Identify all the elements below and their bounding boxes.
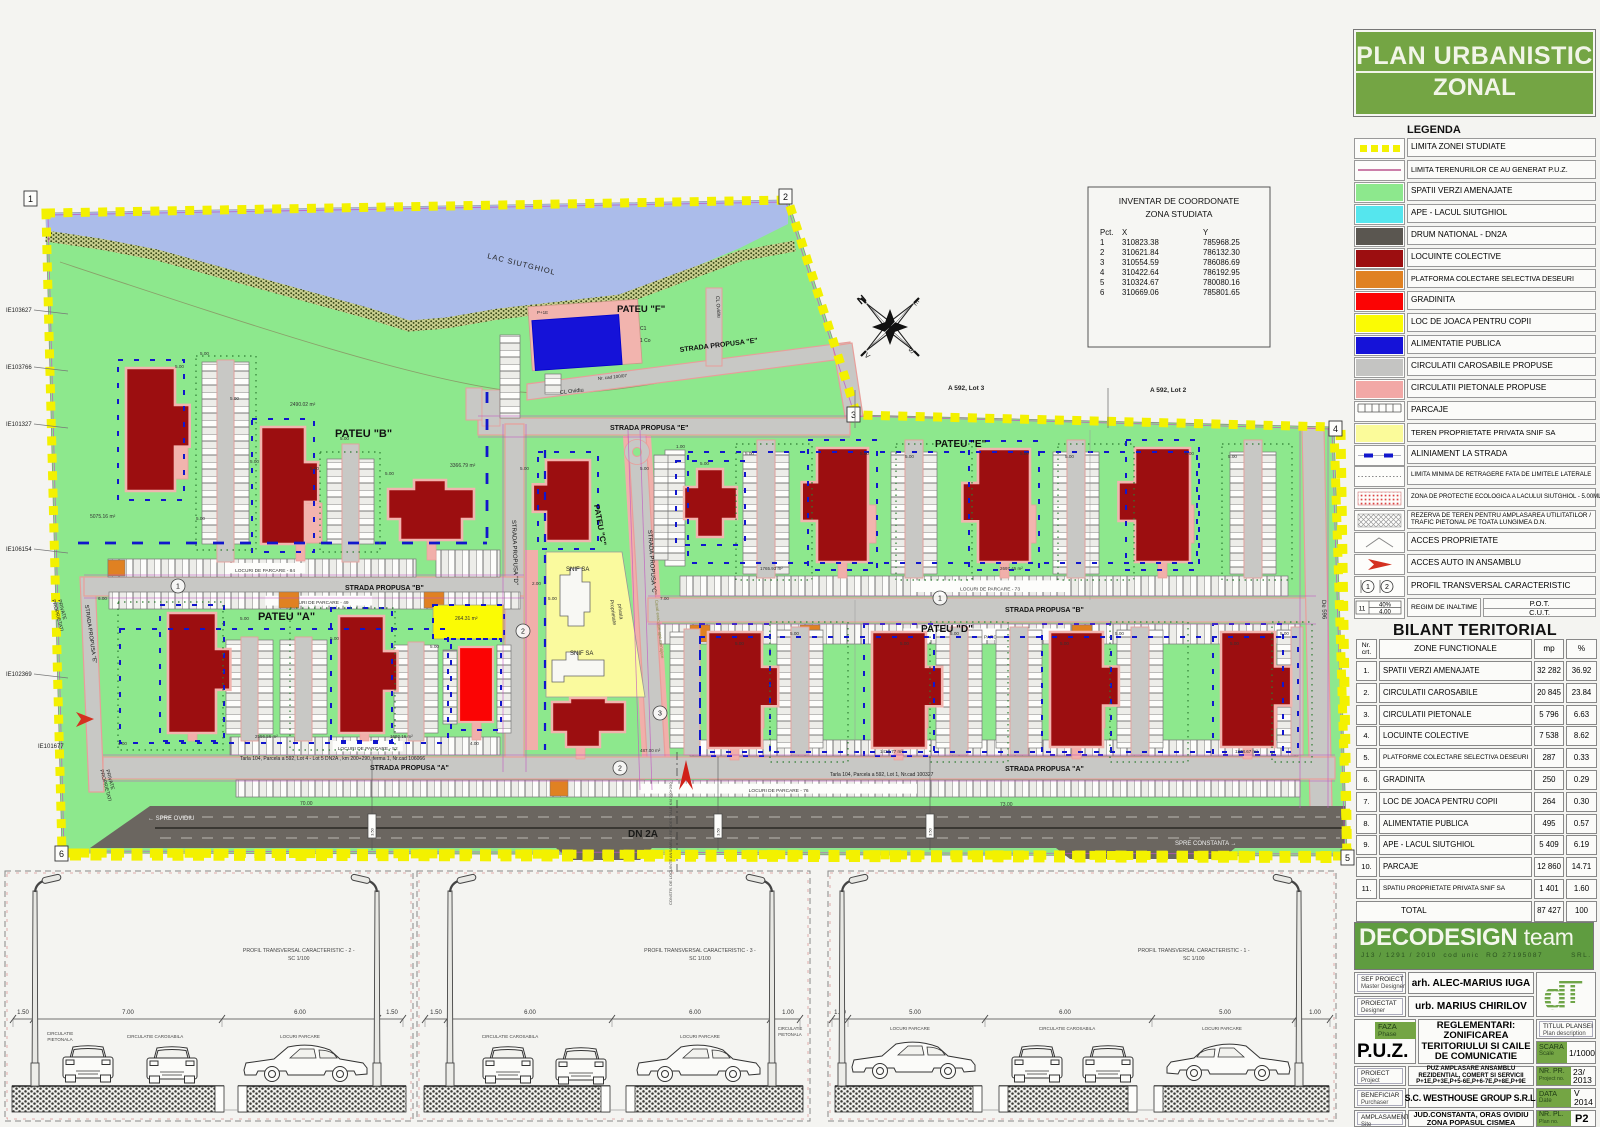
svg-text:5.00: 5.00 xyxy=(1219,1010,1231,1016)
svg-text:5.00: 5.00 xyxy=(240,616,249,621)
svg-text:6.00: 6.00 xyxy=(689,1010,701,1016)
svg-text:STRADA PROPUSA "A": STRADA PROPUSA "A" xyxy=(1005,766,1084,773)
svg-text:IE103766: IE103766 xyxy=(6,365,32,371)
svg-text:5.00: 5.00 xyxy=(1230,641,1239,646)
svg-text:785801.65: 785801.65 xyxy=(1203,288,1241,297)
svg-text:3.50: 3.50 xyxy=(371,828,375,835)
svg-text:← SPRE OVIDIU: ← SPRE OVIDIU xyxy=(148,816,194,822)
svg-text:IE106154: IE106154 xyxy=(6,547,32,553)
svg-text:5.00: 5.00 xyxy=(1065,454,1074,459)
svg-text:310823.38: 310823.38 xyxy=(1122,238,1159,247)
svg-text:STRADA PROPUSA "B": STRADA PROPUSA "B" xyxy=(1005,607,1084,614)
svg-text:5.00: 5.00 xyxy=(905,454,914,459)
svg-text:LOCURI PARCARE: LOCURI PARCARE xyxy=(280,1034,320,1039)
svg-text:IE103627: IE103627 xyxy=(6,308,32,314)
svg-text:5.00: 5.00 xyxy=(196,516,205,521)
svg-text:5.00: 5.00 xyxy=(640,466,649,471)
svg-text:5.00: 5.00 xyxy=(909,1010,921,1016)
svg-text:264.31 m²: 264.31 m² xyxy=(455,616,478,622)
svg-text:Pct.: Pct. xyxy=(1100,228,1113,237)
svg-text:3366.79 m²: 3366.79 m² xyxy=(450,463,476,469)
svg-text:LOCURI PARCARE: LOCURI PARCARE xyxy=(890,1026,930,1031)
svg-text:5.00: 5.00 xyxy=(860,451,869,456)
svg-text:LOCURI PARCARE: LOCURI PARCARE xyxy=(680,1034,720,1039)
svg-text:6: 6 xyxy=(1100,288,1104,297)
svg-text:5.00: 5.00 xyxy=(430,644,439,649)
svg-text:CIRCULATIE CAROSABILA: CIRCULATIE CAROSABILA xyxy=(127,1034,183,1039)
svg-text:2490.02 m²: 2490.02 m² xyxy=(290,402,316,408)
svg-text:5.00: 5.00 xyxy=(900,641,909,646)
svg-text:5.00: 5.00 xyxy=(1115,631,1124,636)
svg-text:SNIF SA: SNIF SA xyxy=(566,567,589,573)
svg-text:5.00: 5.00 xyxy=(200,351,209,356)
svg-text:5.00: 5.00 xyxy=(330,636,339,641)
svg-text:2.00: 2.00 xyxy=(532,581,541,586)
svg-text:7.00: 7.00 xyxy=(122,1010,134,1016)
svg-text:5.00: 5.00 xyxy=(175,364,184,369)
svg-text:CIRCULATIE: CIRCULATIE xyxy=(778,1026,803,1031)
svg-text:4.00: 4.00 xyxy=(1379,610,1391,616)
svg-text:1378.67 m²: 1378.67 m² xyxy=(1235,749,1258,754)
svg-text:5.00: 5.00 xyxy=(950,631,959,636)
svg-text:PROFIL TRANSVERSAL CARACTERIST: PROFIL TRANSVERSAL CARACTERISTIC - 2 - xyxy=(243,948,355,954)
svg-text:CIRCULATIE CAROSABILA: CIRCULATIE CAROSABILA xyxy=(482,1034,538,1039)
svg-text:LOCURI PARCARE: LOCURI PARCARE xyxy=(1202,1026,1242,1031)
svg-text:STRADA PROPUSA "E": STRADA PROPUSA "E" xyxy=(610,425,688,432)
svg-text:2: 2 xyxy=(1385,584,1389,591)
svg-text:T: T xyxy=(1563,974,1583,1010)
svg-text:1692.16 m²: 1692.16 m² xyxy=(390,734,413,739)
svg-text:70.00: 70.00 xyxy=(300,801,313,807)
svg-text:6.00: 6.00 xyxy=(524,1010,536,1016)
svg-text:PATEU "A": PATEU "A" xyxy=(258,611,315,623)
svg-text:3: 3 xyxy=(658,711,662,718)
svg-text:1.00: 1.00 xyxy=(1309,1010,1321,1016)
svg-text:1: 1 xyxy=(1366,584,1370,591)
svg-text:786132.30: 786132.30 xyxy=(1203,248,1241,257)
svg-text:PROFIL TRANSVERSAL CARACTERIST: PROFIL TRANSVERSAL CARACTERISTIC - 3 - xyxy=(644,948,756,954)
svg-text:1: 1 xyxy=(176,584,180,591)
svg-text:5: 5 xyxy=(1100,278,1105,287)
svg-text:5.00: 5.00 xyxy=(790,631,799,636)
svg-text:2: 2 xyxy=(618,766,622,773)
svg-text:6.00: 6.00 xyxy=(98,596,107,601)
svg-text:5.00: 5.00 xyxy=(700,461,709,466)
svg-text:5: 5 xyxy=(1345,853,1350,863)
svg-text:1: 1 xyxy=(28,194,33,204)
svg-text:1: 1 xyxy=(1100,238,1104,247)
svg-text:7.00: 7.00 xyxy=(660,596,669,601)
svg-text:11: 11 xyxy=(1359,606,1366,613)
svg-text:5.00: 5.00 xyxy=(745,451,754,456)
svg-text:CONSTR. DE LOCUINTE ANSAMBLU R: CONSTR. DE LOCUINTE ANSAMBLU REZIDENTIAL… xyxy=(668,782,673,905)
svg-text:STRADA PROPUSA "A": STRADA PROPUSA "A" xyxy=(370,765,449,772)
svg-text:SC 1/100: SC 1/100 xyxy=(689,956,711,962)
svg-text:LOCURI DE PARCARE - 52: LOCURI DE PARCARE - 52 xyxy=(338,746,398,752)
svg-text:310621.84: 310621.84 xyxy=(1122,248,1160,257)
svg-text:SPRE CONSTANTA →: SPRE CONSTANTA → xyxy=(1175,841,1236,847)
svg-text:Y: Y xyxy=(1203,228,1209,237)
svg-text:PIETONALA: PIETONALA xyxy=(778,1032,802,1037)
svg-text:SNIF SA: SNIF SA xyxy=(570,651,593,657)
svg-text:INVENTAR DE COORDONATE: INVENTAR DE COORDONATE xyxy=(1119,196,1240,206)
svg-text:5.00: 5.00 xyxy=(548,596,557,601)
svg-text:1: 1 xyxy=(938,596,942,603)
svg-text:310669.06: 310669.06 xyxy=(1122,288,1159,297)
svg-text:2: 2 xyxy=(1100,248,1104,257)
svg-text:5.00: 5.00 xyxy=(385,471,394,476)
svg-text:LOCURI DE PARCARE - 73: LOCURI DE PARCARE - 73 xyxy=(960,586,1020,592)
svg-text:C1: C1 xyxy=(640,326,647,332)
svg-text:PIETONALA: PIETONALA xyxy=(47,1037,72,1042)
svg-text:780080.16: 780080.16 xyxy=(1203,278,1240,287)
svg-text:40%: 40% xyxy=(1379,603,1392,609)
svg-text:LOCURI DE PARCARE - 76: LOCURI DE PARCARE - 76 xyxy=(749,788,809,794)
svg-text:PATEU "F": PATEU "F" xyxy=(617,304,665,315)
svg-text:IE102369: IE102369 xyxy=(6,672,32,678)
svg-text:1.00: 1.00 xyxy=(676,444,685,449)
svg-text:5.00: 5.00 xyxy=(230,396,239,401)
svg-text:2: 2 xyxy=(521,629,525,636)
svg-text:5.00: 5.00 xyxy=(250,459,259,464)
svg-text:6: 6 xyxy=(59,849,64,859)
svg-text:2697.45 m²: 2697.45 m² xyxy=(1000,566,1023,571)
svg-text:Tarla 104, Parcela a 592, Lot: Tarla 104, Parcela a 592, Lot 4 - Lot 5 … xyxy=(240,756,425,762)
svg-text:PATEU "E": PATEU "E" xyxy=(935,439,987,450)
svg-text:310554.59: 310554.59 xyxy=(1122,258,1159,267)
svg-text:1.00: 1.00 xyxy=(782,1010,794,1016)
svg-text:1.50: 1.50 xyxy=(386,1010,398,1016)
svg-text:ZONA STUDIATA: ZONA STUDIATA xyxy=(1145,209,1212,219)
svg-text:5.00: 5.00 xyxy=(1020,451,1029,456)
svg-text:2: 2 xyxy=(783,192,788,202)
svg-text:Tarla 104, Parcela a 592, Lot: Tarla 104, Parcela a 592, Lot 1, Nr.cad … xyxy=(830,772,934,778)
svg-text:CIRCULATIE: CIRCULATIE xyxy=(47,1031,73,1036)
svg-text:IE101677: IE101677 xyxy=(38,744,64,750)
svg-text:1432.77 m²: 1432.77 m² xyxy=(880,749,903,754)
svg-text:A 592, Lot 3: A 592, Lot 3 xyxy=(948,385,985,392)
svg-text:5.00: 5.00 xyxy=(1185,451,1194,456)
svg-text:DN 2A: DN 2A xyxy=(628,829,658,840)
svg-text:310324.67: 310324.67 xyxy=(1122,278,1159,287)
svg-text:3.50: 3.50 xyxy=(717,828,721,835)
svg-text:4: 4 xyxy=(1100,268,1105,277)
svg-text:487.00 m²: 487.00 m² xyxy=(640,748,661,753)
svg-text:SC 1/100: SC 1/100 xyxy=(1183,956,1205,962)
svg-text:5.00: 5.00 xyxy=(310,466,319,471)
svg-text:STRADA PROPUSA "B": STRADA PROPUSA "B" xyxy=(345,585,424,592)
svg-text:P+1E: P+1E xyxy=(537,310,548,315)
svg-text:X: X xyxy=(1122,228,1128,237)
svg-text:SC 1/100: SC 1/100 xyxy=(288,956,310,962)
svg-text:4.00: 4.00 xyxy=(118,741,127,746)
svg-text:1 Co: 1 Co xyxy=(640,338,651,344)
svg-text:1.50: 1.50 xyxy=(430,1010,442,1016)
svg-text:5.00: 5.00 xyxy=(520,466,529,471)
svg-text:2556.56 m²: 2556.56 m² xyxy=(255,734,278,739)
svg-text:A 592, Lot 2: A 592, Lot 2 xyxy=(1150,387,1187,394)
svg-text:5.00: 5.00 xyxy=(1280,631,1289,636)
svg-text:5075.16 m²: 5075.16 m² xyxy=(90,514,116,520)
svg-text:785968.25: 785968.25 xyxy=(1203,238,1241,247)
svg-text:CIRCULATIE CAROSABILA: CIRCULATIE CAROSABILA xyxy=(1039,1026,1095,1031)
svg-text:IE101327: IE101327 xyxy=(6,422,32,428)
svg-text:4.00: 4.00 xyxy=(470,741,479,746)
svg-text:786192.95: 786192.95 xyxy=(1203,268,1241,277)
svg-text:PATEU "D": PATEU "D" xyxy=(921,624,973,635)
svg-text:3: 3 xyxy=(1100,258,1104,267)
svg-text:5.00: 5.00 xyxy=(735,641,744,646)
svg-text:1765.93 m²: 1765.93 m² xyxy=(760,566,783,571)
svg-text:6.00: 6.00 xyxy=(294,1010,306,1016)
svg-text:3.50: 3.50 xyxy=(929,828,933,835)
svg-text:5.00: 5.00 xyxy=(1060,641,1069,646)
svg-text:310422.64: 310422.64 xyxy=(1122,268,1160,277)
svg-text:5.00: 5.00 xyxy=(340,436,349,441)
svg-text:De 596: De 596 xyxy=(1320,600,1327,620)
svg-text:PROFIL TRANSVERSAL CARACTERIST: PROFIL TRANSVERSAL CARACTERISTIC - 1 - xyxy=(1138,948,1250,954)
svg-text:LOCURI DE PARCARE - 84: LOCURI DE PARCARE - 84 xyxy=(235,568,295,574)
svg-text:73.00: 73.00 xyxy=(1000,802,1013,808)
svg-text:1.50: 1.50 xyxy=(17,1010,29,1016)
svg-text:786086.69: 786086.69 xyxy=(1203,258,1240,267)
svg-text:5.00: 5.00 xyxy=(1228,454,1237,459)
svg-text:4: 4 xyxy=(1333,424,1338,434)
svg-text:6.00: 6.00 xyxy=(1059,1010,1071,1016)
